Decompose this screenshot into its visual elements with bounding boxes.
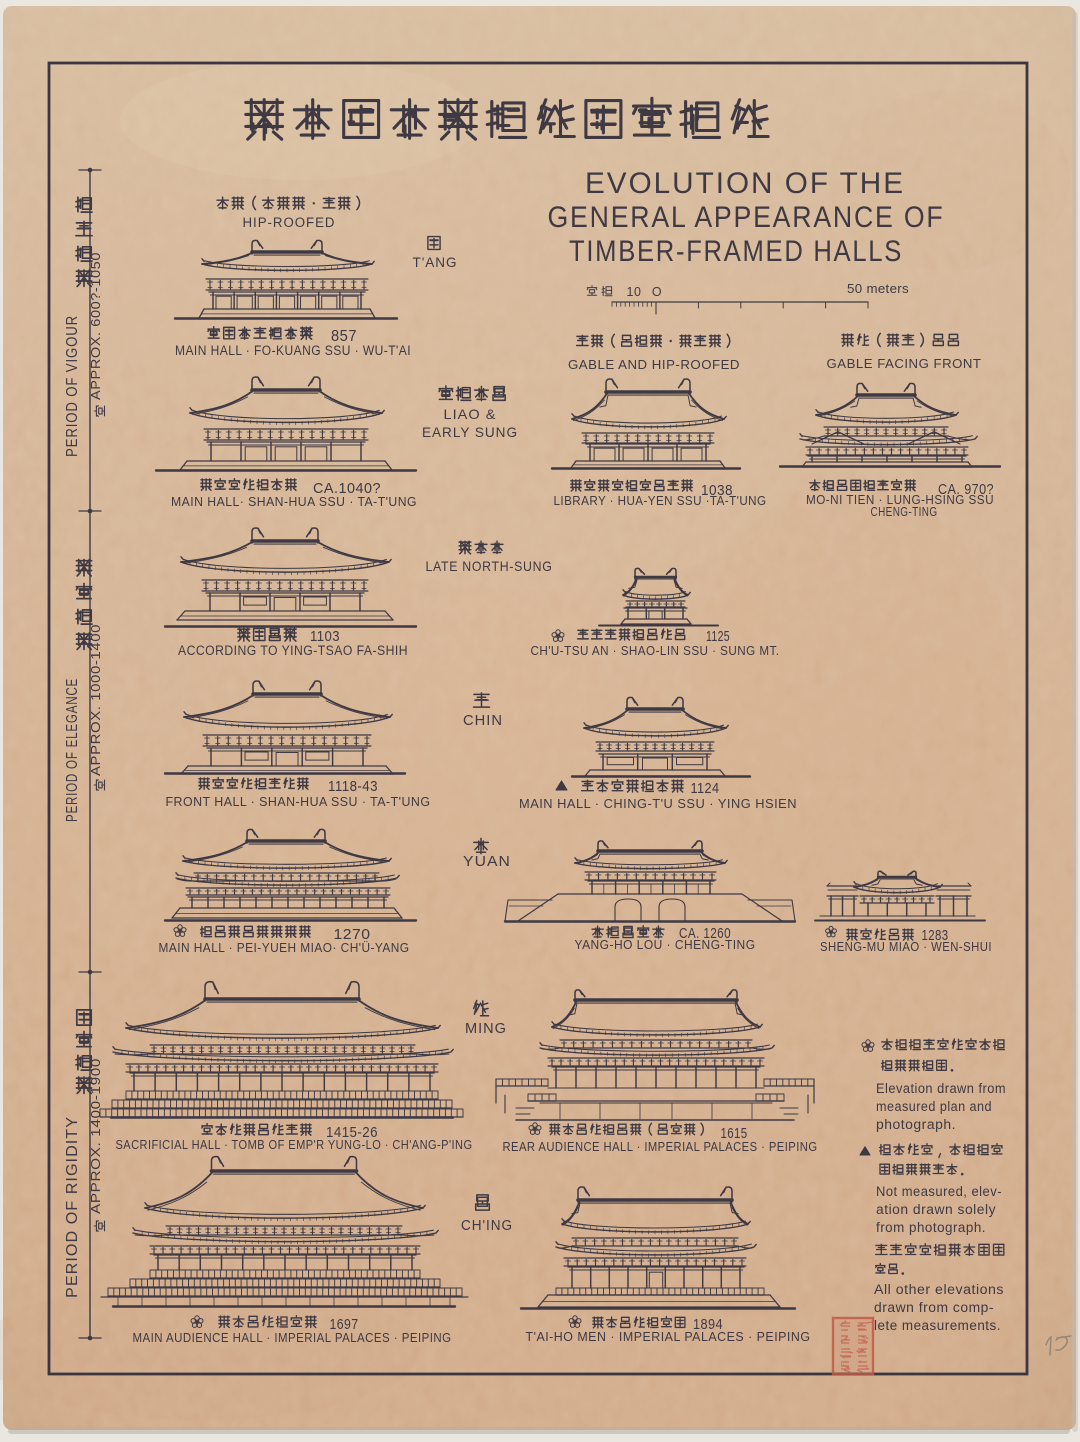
- svg-text:MING: MING: [465, 1021, 507, 1037]
- svg-text:MAIN HALL· SHAN-HUA SSU · TA-T: MAIN HALL· SHAN-HUA SSU · TA-T'UNG: [171, 494, 417, 509]
- svg-text:drawn from comp-: drawn from comp-: [874, 1300, 994, 1315]
- svg-text:CH'ING: CH'ING: [461, 1218, 513, 1234]
- svg-text:CH'U-TSU AN · SHAO-LIN SSU · S: CH'U-TSU AN · SHAO-LIN SSU · SUNG MT.: [531, 643, 780, 658]
- svg-text:Elevation drawn from: Elevation drawn from: [876, 1081, 1006, 1096]
- svg-text:CHIN: CHIN: [463, 713, 503, 729]
- svg-text:All other elevations: All other elevations: [874, 1282, 1004, 1297]
- svg-text:HIP-ROOFED: HIP-ROOFED: [243, 215, 336, 230]
- svg-text:PERIOD OF RIGIDITY: PERIOD OF RIGIDITY: [64, 1116, 81, 1298]
- svg-text:REAR AUDIENCE HALL · IMPERIAL: REAR AUDIENCE HALL · IMPERIAL PALACES · …: [503, 1140, 818, 1154]
- svg-text:T'AI-HO MEN · IMPERIAL PALACES: T'AI-HO MEN · IMPERIAL PALACES · PEIPING: [526, 1330, 811, 1344]
- svg-text:LIBRARY · HUA-YEN SSU ·TA-T'UN: LIBRARY · HUA-YEN SSU ·TA-T'UNG: [554, 493, 767, 508]
- svg-text:photograph.: photograph.: [876, 1117, 956, 1132]
- svg-text:CHENG-TING: CHENG-TING: [871, 505, 938, 519]
- svg-text:from photograph.: from photograph.: [876, 1220, 986, 1235]
- svg-text:O: O: [652, 285, 662, 299]
- svg-text:50 meters: 50 meters: [847, 282, 909, 296]
- svg-text:GENERAL APPEARANCE OF: GENERAL APPEARANCE OF: [548, 201, 945, 234]
- svg-text:SACRIFICIAL HALL · TOMB OF EMP: SACRIFICIAL HALL · TOMB OF EMP'R YUNG-LO…: [116, 1138, 473, 1152]
- svg-text:lete measurements.: lete measurements.: [874, 1318, 1001, 1333]
- svg-text:YANG-HO LOU · CHENG-TING: YANG-HO LOU · CHENG-TING: [575, 937, 756, 952]
- svg-text:SHENG-MU MIAO · WEN-SHUI: SHENG-MU MIAO · WEN-SHUI: [820, 940, 992, 954]
- svg-text:EARLY SUNG: EARLY SUNG: [422, 424, 518, 440]
- svg-text:PERIOD OF ELEGANCE: PERIOD OF ELEGANCE: [64, 678, 81, 822]
- svg-text:FRONT HALL · SHAN-HUA SSU · TA: FRONT HALL · SHAN-HUA SSU · TA-T'UNG: [166, 794, 431, 809]
- svg-text:Not measured, elev-: Not measured, elev-: [876, 1184, 1002, 1199]
- svg-text:LIAO &: LIAO &: [444, 406, 497, 422]
- svg-text:GABLE AND HIP-ROOFED: GABLE AND HIP-ROOFED: [568, 357, 740, 372]
- svg-text:MAIN HALL · FO-KUANG SSU · WU-: MAIN HALL · FO-KUANG SSU · WU-T'AI: [175, 343, 411, 358]
- svg-text:TIMBER-FRAMED HALLS: TIMBER-FRAMED HALLS: [569, 235, 903, 268]
- svg-text:1118-43: 1118-43: [328, 778, 378, 795]
- svg-text:APPROX. 600?-1050: APPROX. 600?-1050: [89, 252, 103, 400]
- svg-text:ation drawn solely: ation drawn solely: [876, 1202, 996, 1217]
- svg-text:T'ANG: T'ANG: [413, 254, 458, 270]
- svg-text:MAIN HALL · PEI-YUEH MIAO· CH: MAIN HALL · PEI-YUEH MIAO· CH'Ü-YANG: [159, 940, 410, 955]
- svg-text:PERIOD OF VIGOUR: PERIOD OF VIGOUR: [64, 315, 81, 457]
- svg-text:YUAN: YUAN: [463, 854, 511, 870]
- svg-text:APPROX. 1000-1400: APPROX. 1000-1400: [89, 624, 103, 776]
- svg-text:APPROX. 1400-1900: APPROX. 1400-1900: [89, 1058, 103, 1214]
- svg-text:1124: 1124: [691, 780, 720, 797]
- svg-text:10: 10: [627, 285, 642, 299]
- svg-text:ACCORDING TO YING-TSAO FA-SHI: ACCORDING TO YING-TSAO FA-SHIH: [178, 643, 408, 658]
- svg-text:LATE NORTH-SUNG: LATE NORTH-SUNG: [426, 558, 553, 574]
- svg-text:measured plan and: measured plan and: [876, 1099, 992, 1114]
- svg-text:MAIN HALL · CHING-T'U SSU · YI: MAIN HALL · CHING-T'U SSU · YING HSIEN: [519, 796, 797, 811]
- svg-text:MAIN AUDIENCE HALL · IMPERIAL: MAIN AUDIENCE HALL · IMPERIAL PALACES · …: [133, 1331, 452, 1345]
- svg-text:GABLE FACING FRONT: GABLE FACING FRONT: [827, 356, 982, 371]
- svg-text:EVOLUTION OF THE: EVOLUTION OF THE: [585, 167, 905, 200]
